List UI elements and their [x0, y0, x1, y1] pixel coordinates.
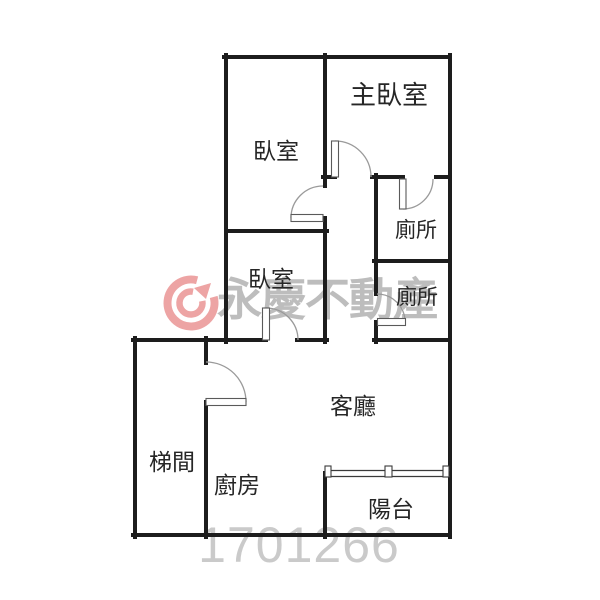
- door-arc-toilet-1: [403, 179, 433, 209]
- watermark-listing-number: 1701266: [198, 517, 400, 573]
- room-label-master-bedroom: 主臥室: [350, 80, 428, 110]
- door-leaf-bedroom-2: [263, 308, 270, 340]
- room-label-bedroom-2: 臥室: [248, 266, 294, 292]
- room-label-living-room: 客廳: [330, 393, 376, 419]
- door-leaf-bedroom-1: [291, 215, 323, 222]
- room-label-balcony: 陽台: [368, 496, 414, 522]
- room-label-bedroom-1: 臥室: [253, 138, 299, 164]
- room-label-stairwell: 梯間: [149, 449, 195, 475]
- door-arc-kitchen: [206, 362, 246, 402]
- door-arc-master-bedroom: [335, 141, 371, 177]
- balcony-window: [325, 466, 450, 477]
- room-label-kitchen: 廚房: [214, 472, 260, 498]
- window-tick-left: [325, 466, 331, 477]
- window-tick-right: [443, 466, 449, 477]
- room-label-toilet-1: 廁所: [395, 219, 437, 242]
- logo-arrow: [194, 283, 211, 299]
- room-label-toilet-2: 廁所: [396, 286, 438, 309]
- door-leaf-toilet-2: [378, 319, 406, 326]
- door-arc-bedroom-1: [291, 186, 323, 218]
- floor-plan-canvas: 永慶不動產 1701266: [0, 0, 600, 600]
- door-leaf-kitchen: [206, 399, 246, 406]
- logo-inner-swirl: [179, 292, 202, 315]
- floor-plan: 永慶不動產 1701266: [0, 0, 600, 600]
- door-leaf-toilet-1: [400, 179, 407, 209]
- door-leaf-master-bedroom: [332, 141, 339, 177]
- window-tick-middle: [385, 466, 392, 477]
- brand-logo-icon: [168, 279, 215, 326]
